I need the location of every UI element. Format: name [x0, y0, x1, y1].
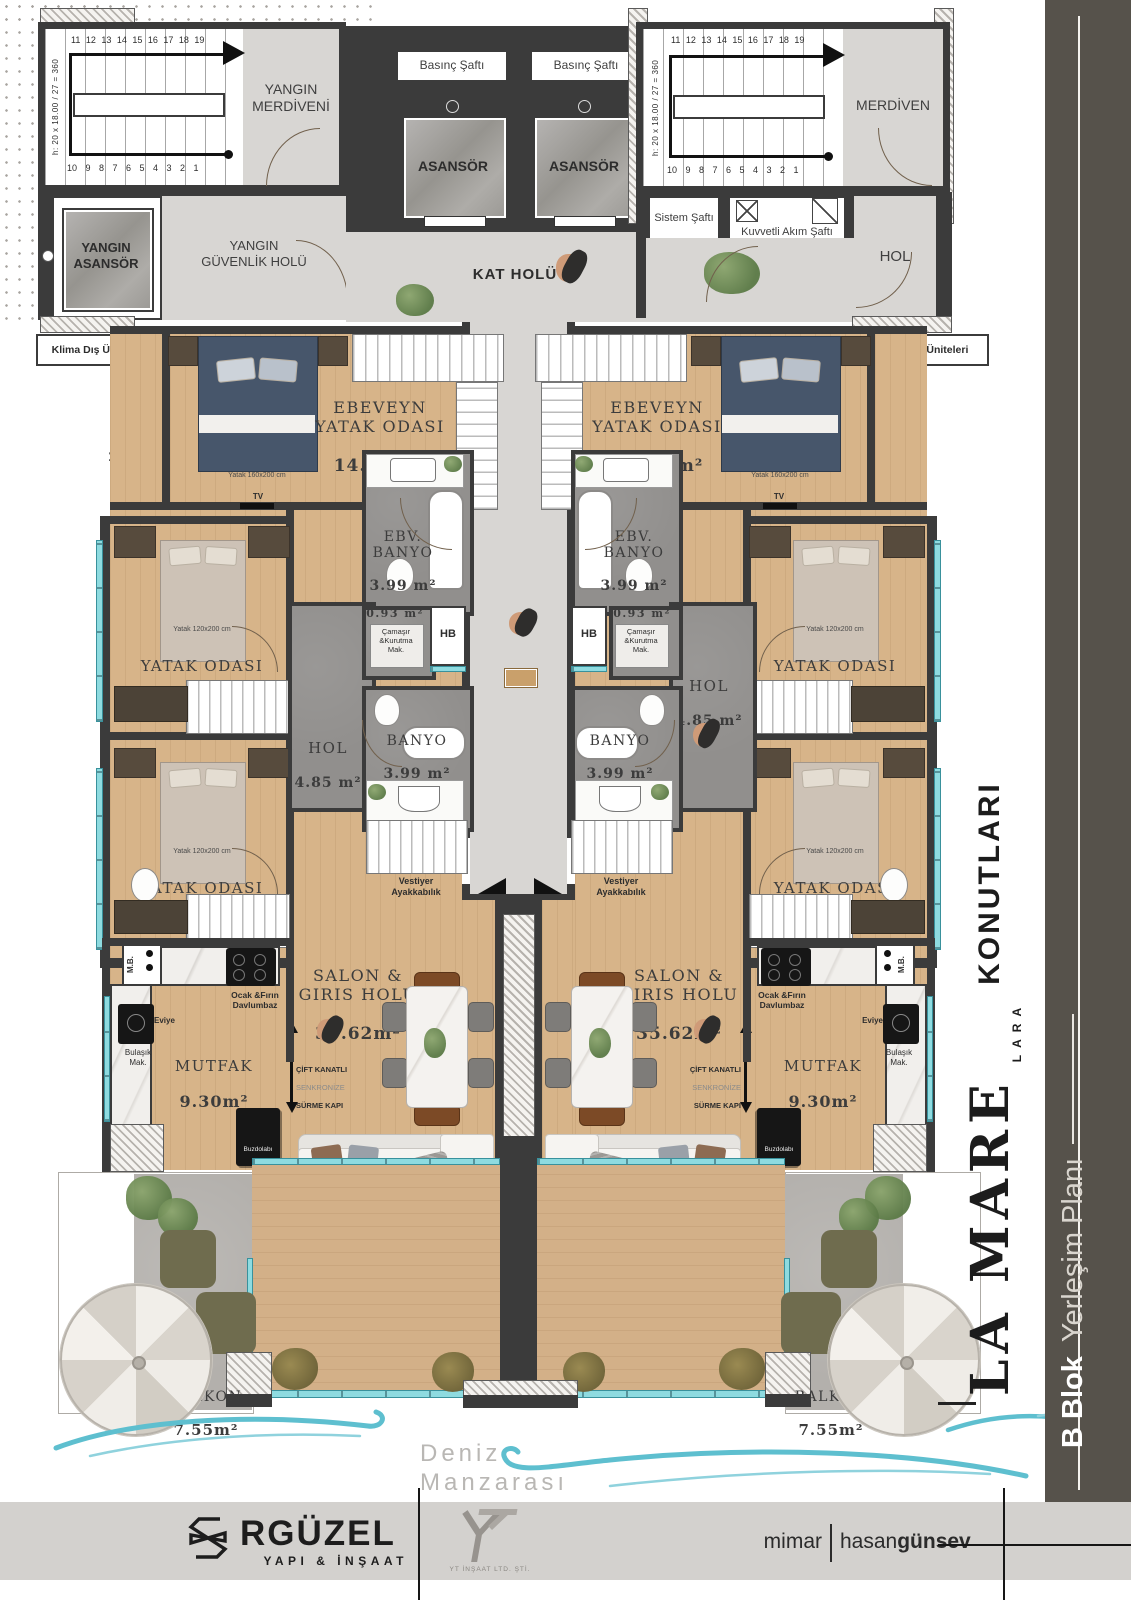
bath-right-sink-icon	[599, 786, 641, 812]
stair-arrow-top-line	[69, 53, 227, 56]
stair-right-landing-rail	[673, 95, 825, 119]
center-shaft-hatch	[503, 914, 535, 1138]
person-hall-right	[688, 714, 724, 758]
fridge-right-label: Buzdolabı	[757, 1146, 801, 1154]
mbath-right-sink-icon	[603, 458, 649, 482]
kitchen-hatch-left	[110, 1124, 164, 1172]
center-pier-base	[463, 1395, 578, 1408]
nightstand-943r-1	[883, 526, 925, 558]
person-floor-hall	[550, 244, 592, 294]
elev-call-right-icon	[578, 100, 591, 113]
sliding-door-l2: SENKRONİZE	[296, 1083, 356, 1092]
living-left-name: SALON & GIRIS HOLU	[296, 967, 420, 1005]
architect-first: hasan	[840, 1530, 897, 1553]
wardrobe-top-right	[535, 334, 687, 382]
nightstand-984r-1	[883, 748, 925, 778]
stair-right-arrow-vert	[669, 55, 672, 157]
stair-numbers-top-left: 11 12 13 14 15 16 17 18 19	[71, 35, 239, 46]
window-kitchen-right	[927, 996, 933, 1122]
nightstand-943l-2	[248, 526, 290, 558]
system-shaft-label: Sistem Şaftı	[648, 212, 720, 225]
wave-icon	[50, 1406, 400, 1466]
pressure-shaft-right-label: Basınç Şaftı	[530, 58, 642, 72]
architect-name: hasangünsev	[840, 1530, 1000, 1554]
wardrobe-943-left	[186, 680, 290, 734]
laundry-right-label: Çamaşır &Kurutma Mak.	[615, 627, 667, 654]
cloakroom-left-cabinet	[366, 820, 468, 874]
umbrella-pole-icon	[132, 1356, 146, 1370]
burner-icon	[789, 954, 801, 966]
desk-943-left	[114, 686, 188, 722]
plant-mbath-right	[575, 456, 593, 472]
tv-wall-right-icon	[763, 503, 797, 509]
burner-icon	[233, 954, 245, 966]
mbath-left-sink-icon	[390, 458, 436, 482]
hb-left-sill	[430, 666, 466, 672]
pillow-icon	[837, 768, 870, 788]
sink-bowl-icon	[127, 1014, 145, 1032]
hall-mid-right-name: HOL	[673, 678, 745, 696]
bath-left-sink-icon	[398, 786, 440, 812]
living-right-name: SALON & GIRIS HOLU	[617, 967, 741, 1005]
laundry-right-area: 0.93 m²	[609, 608, 675, 621]
architect-label: mimar	[758, 1530, 822, 1554]
wall-b943-top-right	[743, 516, 927, 524]
yt-logo-icon	[452, 1506, 524, 1566]
bed-sheet-fold	[199, 415, 315, 433]
dining-chair	[631, 1002, 657, 1032]
rguzel-logo-icon	[184, 1514, 232, 1562]
pouf-984-right-icon	[880, 868, 908, 902]
stair-numbers-bottom-right: 10 9 8 7 6 5 4 3 2 1	[667, 165, 839, 176]
mb-left-label: M.B.	[126, 948, 140, 982]
stair-numbers-top-right: 11 12 13 14 15 16 17 18 19	[671, 35, 839, 46]
laundry-left-label: Çamaşır &Kurutma Mak.	[370, 627, 422, 654]
pillow-icon	[837, 546, 870, 566]
stair-arrow-vert-line	[69, 53, 72, 155]
plan-title-lockup: B Blok Yerleşim Planı	[1052, 838, 1094, 1448]
pillow-icon	[739, 357, 779, 383]
desk-984-right	[851, 900, 925, 934]
window-b943-right	[934, 540, 941, 722]
dining-chair	[382, 1058, 408, 1088]
desk-943-right	[851, 686, 925, 722]
stair-right-label: MERDİVEN	[845, 97, 941, 114]
window-b943-left	[96, 540, 103, 722]
brand-sub: LARA	[1010, 1001, 1024, 1062]
nightstand-943r-2	[749, 526, 791, 558]
sliding-door-right-label: ÇİFT KANATLI SENKRONİZE SÜRME KAPI	[681, 1056, 741, 1119]
mb-dot-icon	[884, 950, 891, 957]
glass-salon-left	[252, 1158, 500, 1165]
wall-b943-top-left	[110, 516, 294, 524]
architect-last: günsev	[897, 1530, 971, 1553]
kitchen-left-name: MUTFAK	[172, 1058, 256, 1076]
plant-floor-hall	[396, 284, 434, 316]
tv-label-bedroom-left: TV	[246, 492, 270, 502]
window-b984-right	[934, 768, 941, 950]
cooktop-right	[761, 948, 811, 986]
architect-divider	[830, 1524, 832, 1562]
brand-name: LA MARE	[960, 1078, 1021, 1396]
sink-bowl-icon	[892, 1014, 910, 1032]
sink-right-label: Eviye	[847, 1016, 883, 1026]
sliding-door-right-arrow-down	[740, 1102, 752, 1113]
laundry-left-area: 0.93 m²	[362, 608, 428, 621]
brand-type: KONUTLARI	[973, 781, 1007, 985]
plant-mbath-left	[444, 456, 462, 472]
window-b984-left	[96, 768, 103, 950]
sliding-door-l1: ÇİFT KANATLI	[296, 1065, 356, 1074]
plant-bath-left	[368, 784, 386, 800]
elev-call-left-icon	[446, 100, 459, 113]
dishwasher-left-label: Bulaşık Mak.	[114, 1048, 162, 1067]
nightstand-ml-1	[168, 336, 198, 366]
hall-mid-left-label: HOL 4.85 m²	[292, 722, 364, 809]
fire-elevator-label: YANGIN ASANSÖR	[64, 240, 148, 271]
fire-elev-knob-icon	[42, 250, 54, 262]
tv-label-bedroom-right: TV	[767, 492, 791, 502]
stair-arrow-head	[223, 41, 245, 65]
footer-divider-right	[1003, 1488, 1005, 1600]
dishwasher-right-label: Bulaşık Mak.	[875, 1048, 923, 1067]
mb-dot-icon	[884, 964, 891, 971]
burner-icon	[789, 969, 801, 981]
pillow-icon	[801, 546, 834, 567]
master-bedroom-right-name: EBEVEYN YATAK ODASI	[577, 399, 737, 437]
stair-arrow-dot	[224, 150, 233, 159]
pillow-icon	[216, 357, 256, 383]
dining-plant-left	[424, 1028, 446, 1058]
nightstand-943l-1	[114, 526, 156, 558]
glass-salon-right	[537, 1158, 785, 1165]
elevator-right-label: ASANSÖR	[535, 158, 633, 175]
builder-sub: YAPI & İNŞAAT	[240, 1554, 408, 1568]
stair-right-arrow-top	[669, 55, 827, 58]
dining-chair	[468, 1002, 494, 1032]
olive-chair-left	[160, 1230, 216, 1288]
sliding-door-l3: SÜRME KAPI	[296, 1101, 356, 1110]
shrub-deck-right	[719, 1348, 765, 1390]
master-bath-left-area: 3.99 m²	[366, 578, 440, 595]
umbrella-pole-icon	[900, 1356, 914, 1370]
center-shaft-dark	[503, 1136, 535, 1382]
burner-icon	[254, 954, 266, 966]
dining-chair	[631, 1058, 657, 1088]
hb-right-sill	[571, 666, 607, 672]
sliding-door-r1: ÇİFT KANATLI	[681, 1065, 741, 1074]
dining-chair	[545, 1002, 571, 1032]
master-bed-right	[721, 336, 841, 472]
sliding-door-r3: SÜRME KAPI	[681, 1101, 741, 1110]
wall-under-fire-stair	[38, 186, 346, 196]
stove-right-label: Ocak &Fırın Davlumbaz	[747, 990, 817, 1010]
elevator-left-sill	[424, 216, 486, 227]
plan-type-label: Yerleşim Planı	[1057, 1158, 1090, 1342]
plan-title-line	[1072, 1014, 1074, 1144]
hb-right-label: HB	[571, 628, 607, 641]
nightstand-984l-2	[248, 748, 290, 778]
bed-sheet-fold	[722, 415, 838, 433]
nightstand-ml-2	[318, 336, 348, 366]
stair-numbers-bottom-left: 10 9 8 7 6 5 4 3 2 1	[67, 163, 239, 174]
stair-dimension-left: h: 20 x 18.00 / 27 = 360	[51, 47, 64, 167]
pillow-icon	[168, 768, 201, 789]
sink-unit-left	[118, 1004, 154, 1044]
builder-name: RGÜZEL	[240, 1514, 410, 1554]
power-shaft-hatch-icon	[812, 198, 838, 224]
pillow-icon	[204, 768, 237, 788]
kitchen-right-name: MUTFAK	[781, 1058, 865, 1076]
tv-wall-left-icon	[240, 503, 274, 509]
nightstand-984l-1	[114, 748, 156, 778]
plant-bath-right	[651, 784, 669, 800]
wardrobe-943-right	[749, 680, 853, 734]
power-shaft-x-icon	[736, 200, 758, 222]
pillow-icon	[801, 768, 834, 789]
olive-chair-right	[821, 1230, 877, 1288]
nightstand-mr-1	[841, 336, 871, 366]
footer-divider-left	[418, 1488, 420, 1600]
stair-right-arrow-head	[823, 43, 845, 67]
elevator-right-sill	[554, 216, 616, 227]
pillow-icon	[258, 357, 298, 382]
stair-arrow-bottom-line	[69, 153, 229, 156]
sliding-door-left-label: ÇİFT KANATLI SENKRONİZE SÜRME KAPI	[296, 1056, 356, 1119]
wardrobe-top-left	[352, 334, 504, 382]
hall-mid-left-area: 4.85 m²	[292, 775, 364, 792]
corridor-bench	[504, 668, 538, 688]
sink-left-label: Eviye	[154, 1016, 190, 1026]
stair-right-arrow-dot	[824, 152, 833, 161]
hb-left-label: HB	[430, 628, 466, 641]
nightstand-mr-2	[691, 336, 721, 366]
cloakroom-right-cabinet	[571, 820, 673, 874]
stair-right-arrow-bottom	[669, 155, 829, 158]
shrub-deck-left	[272, 1348, 318, 1390]
person-corridor	[503, 604, 543, 646]
sink-unit-right	[883, 1004, 919, 1044]
cooktop-left	[226, 948, 276, 986]
dining-chair	[545, 1058, 571, 1088]
hall-mid-left-name: HOL	[292, 740, 364, 758]
window-kitchen-left	[104, 996, 110, 1122]
wall-ebev-bottom-left	[110, 502, 366, 510]
bed-size-160-right: Yatak 160x200 cm	[719, 472, 841, 480]
fire-stair-label: YANGIN MERDİVENİ	[245, 81, 337, 115]
cloakroom-left-label: Vestiyer Ayakkabılık	[368, 876, 464, 898]
fridge-left-label: Buzdolabı	[236, 1146, 280, 1154]
pressure-shaft-left-label: Basınç Şaftı	[396, 58, 508, 72]
pillow-icon	[204, 546, 237, 566]
plan-block-label: B Blok	[1057, 1356, 1090, 1448]
desk-984-left	[114, 900, 188, 934]
elevator-left-label: ASANSÖR	[404, 158, 502, 175]
wall-ebev-bottom-right	[671, 502, 927, 510]
pillow-icon	[781, 357, 821, 382]
brand-dash	[938, 1402, 976, 1405]
pouf-984-left-icon	[131, 868, 159, 902]
dining-plant-right	[589, 1028, 611, 1058]
burner-icon	[233, 969, 245, 981]
dining-chair	[382, 1002, 408, 1032]
kitchen-hatch-right	[873, 1124, 927, 1172]
mb-dot-icon	[146, 950, 153, 957]
brand-lockup: LA MARE LARA KONUTLARI	[942, 816, 1038, 1396]
master-bath-right-area: 3.99 m²	[597, 578, 671, 595]
person-living-left	[311, 1011, 349, 1053]
stove-left-label: Ocak &Fırın Davlumbaz	[220, 990, 290, 1010]
mb-right-label: M.B.	[897, 948, 911, 982]
burner-icon	[768, 969, 780, 981]
dining-chair	[468, 1058, 494, 1088]
stair-dimension-right: h: 20 x 18.00 / 27 = 360	[651, 47, 664, 169]
contractor-sub: YT İNŞAAT LTD. ŞTİ.	[440, 1566, 540, 1573]
sliding-door-r2: SENKRONİZE	[681, 1083, 741, 1092]
master-bedroom-left-name: EBEVEYN YATAK ODASI	[300, 399, 460, 437]
person-living-right	[688, 1011, 726, 1053]
mb-dot-icon	[146, 964, 153, 971]
floor-plan-page: YANGIN MERDİVENİ 11 12 13 14 15 16 17 18…	[0, 0, 1131, 1600]
cloakroom-right-label: Vestiyer Ayakkabılık	[573, 876, 669, 898]
pillow-icon	[168, 546, 201, 567]
burner-icon	[768, 954, 780, 966]
footer-hline	[938, 1544, 1131, 1546]
burner-icon	[254, 969, 266, 981]
stair-landing-rail	[73, 93, 225, 117]
